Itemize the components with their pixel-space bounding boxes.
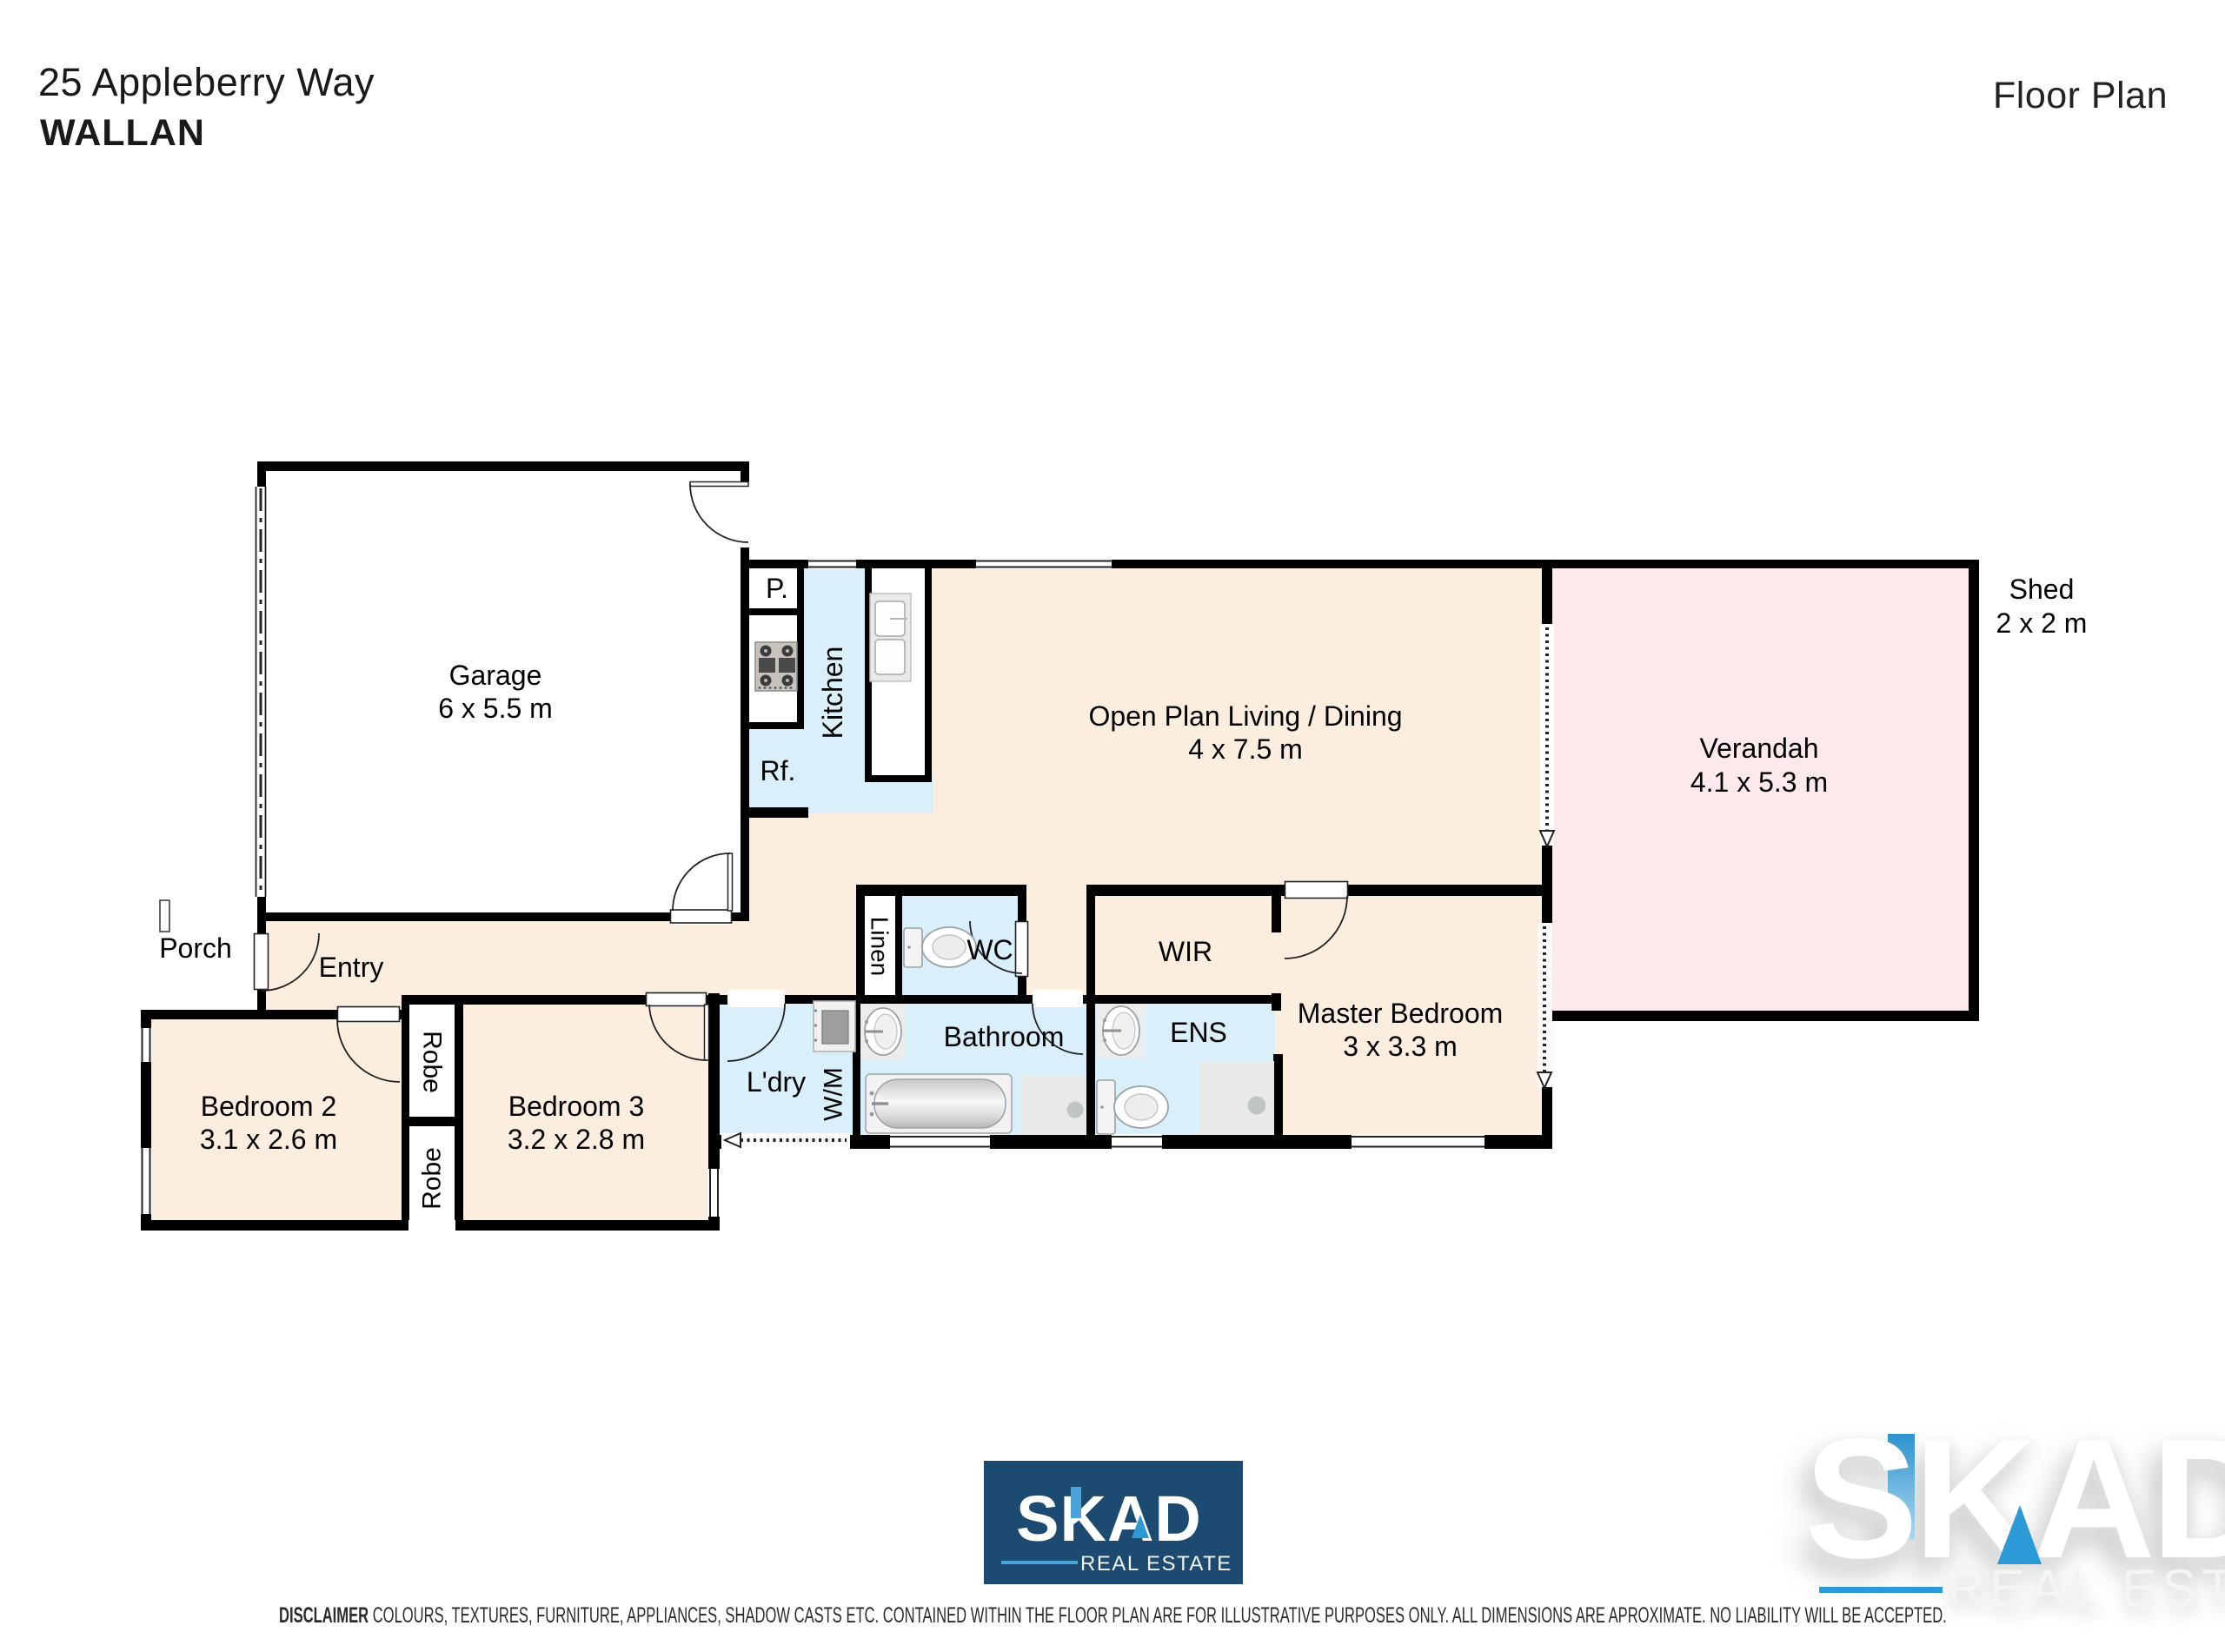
svg-text:Porch: Porch [159,932,232,964]
svg-text:P.: P. [766,573,788,604]
svg-text:WIR: WIR [1159,936,1212,967]
svg-text:3.1 x 2.6 m: 3.1 x 2.6 m [200,1124,337,1155]
svg-text:6 x 5.5 m: 6 x 5.5 m [438,693,553,724]
svg-text:Shed: Shed [2009,574,2075,605]
svg-text:REAL ESTATE: REAL ESTATE [1947,1559,2225,1617]
svg-text:Bedroom 3: Bedroom 3 [508,1091,645,1122]
svg-text:Bedroom 2: Bedroom 2 [201,1091,337,1122]
svg-text:Kitchen: Kitchen [817,647,848,740]
svg-text:Open Plan Living / Dining: Open Plan Living / Dining [1088,700,1402,732]
svg-text:4.1 x 5.3 m: 4.1 x 5.3 m [1690,766,1828,798]
svg-text:3 x 3.3 m: 3 x 3.3 m [1343,1031,1458,1062]
svg-text:Floor Plan: Floor Plan [1993,75,2168,116]
svg-text:ENS: ENS [1170,1017,1227,1048]
svg-text:Master Bedroom: Master Bedroom [1298,998,1504,1029]
svg-text:4 x 7.5 m: 4 x 7.5 m [1188,733,1303,765]
svg-text:DISCLAIMER COLOURS, TEXTURES,: DISCLAIMER COLOURS, TEXTURES, FURNITURE,… [279,1604,1947,1628]
svg-text:L'dry: L'dry [747,1066,806,1098]
svg-text:REAL ESTATE: REAL ESTATE [1080,1552,1232,1576]
svg-text:2 x 2 m: 2 x 2 m [1996,607,2088,639]
svg-text:3.2 x 2.8 m: 3.2 x 2.8 m [508,1124,645,1155]
svg-text:Linen: Linen [867,917,893,977]
svg-text:25 Appleberry Way: 25 Appleberry Way [38,60,375,104]
svg-text:Rf.: Rf. [760,755,796,786]
svg-text:Robe: Robe [418,1147,447,1210]
svg-text:WALLAN: WALLAN [40,112,205,154]
svg-text:WC: WC [966,934,1013,965]
svg-text:Verandah: Verandah [1699,733,1818,764]
svg-text:W/M: W/M [820,1067,848,1121]
svg-text:Entry: Entry [319,952,384,983]
svg-text:Robe: Robe [418,1031,447,1093]
svg-text:Garage: Garage [449,660,542,691]
svg-text:SKAD: SKAD [1016,1483,1202,1555]
svg-text:Bathroom: Bathroom [944,1021,1065,1052]
